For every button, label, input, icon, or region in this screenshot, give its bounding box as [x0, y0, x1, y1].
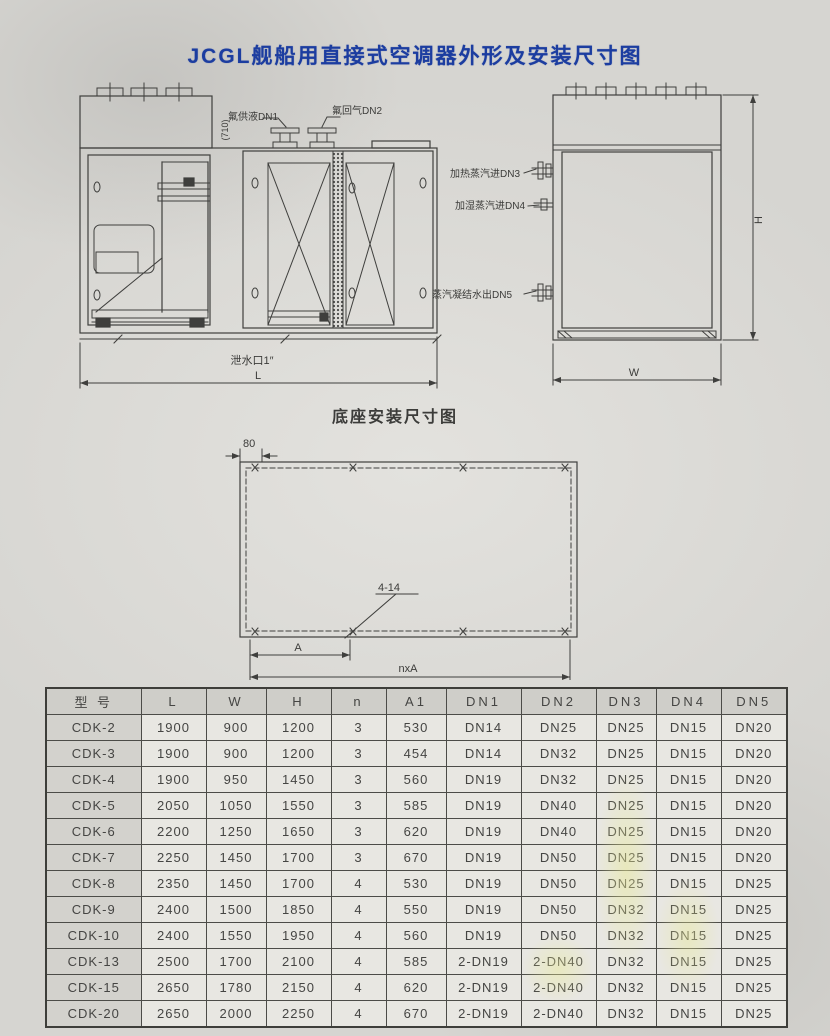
value-cell: 2650: [141, 975, 206, 1001]
value-cell: DN15: [656, 793, 721, 819]
value-cell: 1500: [206, 897, 266, 923]
value-cell: 530: [386, 871, 446, 897]
value-cell: 2200: [141, 819, 206, 845]
dimension-table: 型 号LWHnA1DN1DN2DN3DN4DN5 CDK-21900900120…: [45, 687, 788, 1028]
side-label-dn5: 蒸汽凝结水出DN5: [432, 288, 512, 301]
value-cell: DN19: [446, 845, 521, 871]
value-cell: DN15: [656, 741, 721, 767]
value-cell: 1550: [206, 923, 266, 949]
value-cell: 2000: [206, 1001, 266, 1028]
value-cell: DN32: [596, 1001, 656, 1028]
value-cell: 1700: [266, 871, 331, 897]
model-cell: CDK-15: [46, 975, 141, 1001]
base-drawing-title: 底座安装尺寸图: [332, 407, 458, 426]
value-cell: 2-DN19: [446, 1001, 521, 1028]
value-cell: 3: [331, 819, 386, 845]
table-row: CDK-4190095014503560DN19DN32DN25DN15DN20: [46, 767, 787, 793]
table-row: CDK-92400150018504550DN19DN50DN32DN15DN2…: [46, 897, 787, 923]
value-cell: DN15: [656, 923, 721, 949]
value-cell: 585: [386, 793, 446, 819]
value-cell: 2100: [266, 949, 331, 975]
value-cell: 620: [386, 819, 446, 845]
base-drawing: [226, 449, 577, 680]
value-cell: 1950: [266, 923, 331, 949]
value-cell: DN15: [656, 767, 721, 793]
value-cell: DN25: [721, 949, 787, 975]
table-row: CDK-2026502000225046702-DN192-DN40DN32DN…: [46, 1001, 787, 1028]
front-dim-length: L: [255, 370, 261, 382]
value-cell: DN25: [596, 793, 656, 819]
side-label-dn3: 加热蒸汽进DN3: [450, 167, 520, 180]
front-label-dn2: 氟回气DN2: [332, 104, 382, 117]
value-cell: 1700: [206, 949, 266, 975]
value-cell: 530: [386, 715, 446, 741]
value-cell: 2650: [141, 1001, 206, 1028]
value-cell: 3: [331, 741, 386, 767]
value-cell: DN50: [521, 845, 596, 871]
value-cell: DN20: [721, 767, 787, 793]
value-cell: DN19: [446, 767, 521, 793]
value-cell: 2400: [141, 923, 206, 949]
value-cell: 560: [386, 767, 446, 793]
value-cell: DN19: [446, 819, 521, 845]
value-cell: DN32: [596, 949, 656, 975]
table-header-cell: W: [206, 688, 266, 715]
value-cell: DN14: [446, 715, 521, 741]
value-cell: 4: [331, 1001, 386, 1028]
value-cell: 1900: [141, 741, 206, 767]
model-cell: CDK-10: [46, 923, 141, 949]
side-dim-width: W: [629, 367, 640, 379]
model-cell: CDK-13: [46, 949, 141, 975]
table-row: CDK-1526501780215046202-DN192-DN40DN32DN…: [46, 975, 787, 1001]
value-cell: 2-DN40: [521, 949, 596, 975]
value-cell: 1650: [266, 819, 331, 845]
value-cell: DN15: [656, 845, 721, 871]
value-cell: 2250: [141, 845, 206, 871]
model-cell: CDK-2: [46, 715, 141, 741]
value-cell: DN25: [521, 715, 596, 741]
value-cell: 950: [206, 767, 266, 793]
model-cell: CDK-4: [46, 767, 141, 793]
value-cell: DN25: [596, 871, 656, 897]
value-cell: DN19: [446, 871, 521, 897]
value-cell: DN19: [446, 897, 521, 923]
value-cell: 1450: [206, 845, 266, 871]
value-cell: DN25: [721, 975, 787, 1001]
value-cell: 2350: [141, 871, 206, 897]
value-cell: 1450: [206, 871, 266, 897]
technical-drawings: 氟供液DN1 氟回气DN2 (710) 泄水口1″ L: [0, 0, 830, 680]
value-cell: 1200: [266, 741, 331, 767]
value-cell: 2400: [141, 897, 206, 923]
front-label-dn1: 氟供液DN1: [228, 110, 278, 123]
value-cell: DN50: [521, 897, 596, 923]
table-header-cell: 型 号: [46, 688, 141, 715]
value-cell: DN32: [596, 975, 656, 1001]
table-header-cell: DN4: [656, 688, 721, 715]
value-cell: DN25: [721, 1001, 787, 1028]
value-cell: 1780: [206, 975, 266, 1001]
value-cell: 3: [331, 715, 386, 741]
value-cell: 1550: [266, 793, 331, 819]
value-cell: 3: [331, 767, 386, 793]
value-cell: 3: [331, 793, 386, 819]
table-header-cell: n: [331, 688, 386, 715]
value-cell: DN40: [521, 819, 596, 845]
value-cell: DN20: [721, 819, 787, 845]
value-cell: DN19: [446, 793, 521, 819]
value-cell: DN20: [721, 845, 787, 871]
value-cell: 3: [331, 845, 386, 871]
table-row: CDK-62200125016503620DN19DN40DN25DN15DN2…: [46, 819, 787, 845]
model-cell: CDK-7: [46, 845, 141, 871]
model-cell: CDK-20: [46, 1001, 141, 1028]
value-cell: DN25: [596, 767, 656, 793]
value-cell: 2050: [141, 793, 206, 819]
value-cell: DN32: [521, 767, 596, 793]
value-cell: 4: [331, 949, 386, 975]
value-cell: 2250: [266, 1001, 331, 1028]
model-cell: CDK-8: [46, 871, 141, 897]
table-header-cell: DN1: [446, 688, 521, 715]
front-label-drain: 泄水口1″: [230, 354, 273, 367]
side-dim-height: H: [753, 216, 765, 224]
value-cell: 1700: [266, 845, 331, 871]
value-cell: 2150: [266, 975, 331, 1001]
value-cell: 1250: [206, 819, 266, 845]
value-cell: 4: [331, 871, 386, 897]
value-cell: DN14: [446, 741, 521, 767]
value-cell: DN50: [521, 871, 596, 897]
model-cell: CDK-9: [46, 897, 141, 923]
table-header-cell: DN2: [521, 688, 596, 715]
value-cell: 1900: [141, 767, 206, 793]
value-cell: DN20: [721, 715, 787, 741]
value-cell: DN32: [521, 741, 596, 767]
side-label-dn4: 加湿蒸汽进DN4: [455, 199, 525, 212]
model-cell: CDK-3: [46, 741, 141, 767]
value-cell: 2-DN40: [521, 975, 596, 1001]
table-row: CDK-82350145017004530DN19DN50DN25DN15DN2…: [46, 871, 787, 897]
value-cell: 900: [206, 715, 266, 741]
value-cell: DN40: [521, 793, 596, 819]
value-cell: 585: [386, 949, 446, 975]
table-row: CDK-1325001700210045852-DN192-DN40DN32DN…: [46, 949, 787, 975]
value-cell: 670: [386, 845, 446, 871]
table-header-cell: DN3: [596, 688, 656, 715]
value-cell: 2-DN40: [521, 1001, 596, 1028]
value-cell: DN15: [656, 715, 721, 741]
front-view-drawing: [80, 83, 441, 388]
table-row: CDK-3190090012003454DN14DN32DN25DN15DN20: [46, 741, 787, 767]
value-cell: DN25: [721, 871, 787, 897]
table-row: CDK-2190090012003530DN14DN25DN25DN15DN20: [46, 715, 787, 741]
table-header-cell: A1: [386, 688, 446, 715]
value-cell: DN15: [656, 871, 721, 897]
value-cell: 2-DN19: [446, 975, 521, 1001]
value-cell: 620: [386, 975, 446, 1001]
value-cell: DN15: [656, 1001, 721, 1028]
table-row: CDK-52050105015503585DN19DN40DN25DN15DN2…: [46, 793, 787, 819]
value-cell: 4: [331, 897, 386, 923]
value-cell: 454: [386, 741, 446, 767]
value-cell: 1850: [266, 897, 331, 923]
value-cell: 900: [206, 741, 266, 767]
value-cell: 1450: [266, 767, 331, 793]
base-dim-80: 80: [243, 438, 255, 450]
value-cell: 4: [331, 923, 386, 949]
side-view-drawing: [524, 83, 758, 385]
value-cell: DN19: [446, 923, 521, 949]
value-cell: 1200: [266, 715, 331, 741]
value-cell: DN20: [721, 741, 787, 767]
value-cell: DN20: [721, 793, 787, 819]
value-cell: DN25: [596, 819, 656, 845]
value-cell: 560: [386, 923, 446, 949]
table-row: CDK-72250145017003670DN19DN50DN25DN15DN2…: [46, 845, 787, 871]
value-cell: 2-DN19: [446, 949, 521, 975]
model-cell: CDK-5: [46, 793, 141, 819]
value-cell: 1050: [206, 793, 266, 819]
table-row: CDK-102400155019504560DN19DN50DN32DN15DN…: [46, 923, 787, 949]
value-cell: DN15: [656, 897, 721, 923]
scanned-spec-sheet: { "page": { "title": "JCGL舰船用直接式空调器外形及安装…: [0, 0, 830, 1036]
value-cell: DN25: [596, 845, 656, 871]
value-cell: DN15: [656, 975, 721, 1001]
value-cell: 670: [386, 1001, 446, 1028]
base-dim-a: A: [294, 642, 302, 654]
value-cell: DN15: [656, 819, 721, 845]
value-cell: DN25: [596, 715, 656, 741]
table-header-cell: H: [266, 688, 331, 715]
value-cell: 550: [386, 897, 446, 923]
value-cell: DN15: [656, 949, 721, 975]
value-cell: DN50: [521, 923, 596, 949]
table-header-row: 型 号LWHnA1DN1DN2DN3DN4DN5: [46, 688, 787, 715]
table-header-cell: L: [141, 688, 206, 715]
value-cell: 4: [331, 975, 386, 1001]
value-cell: DN32: [596, 923, 656, 949]
table-header-cell: DN5: [721, 688, 787, 715]
value-cell: DN25: [596, 741, 656, 767]
value-cell: DN25: [721, 897, 787, 923]
value-cell: DN32: [596, 897, 656, 923]
value-cell: 1900: [141, 715, 206, 741]
value-cell: DN25: [721, 923, 787, 949]
base-label-holes: 4-14: [378, 582, 400, 594]
value-cell: 2500: [141, 949, 206, 975]
model-cell: CDK-6: [46, 819, 141, 845]
front-dim-710: (710): [220, 119, 230, 140]
base-dim-nxa: nxA: [399, 663, 419, 675]
